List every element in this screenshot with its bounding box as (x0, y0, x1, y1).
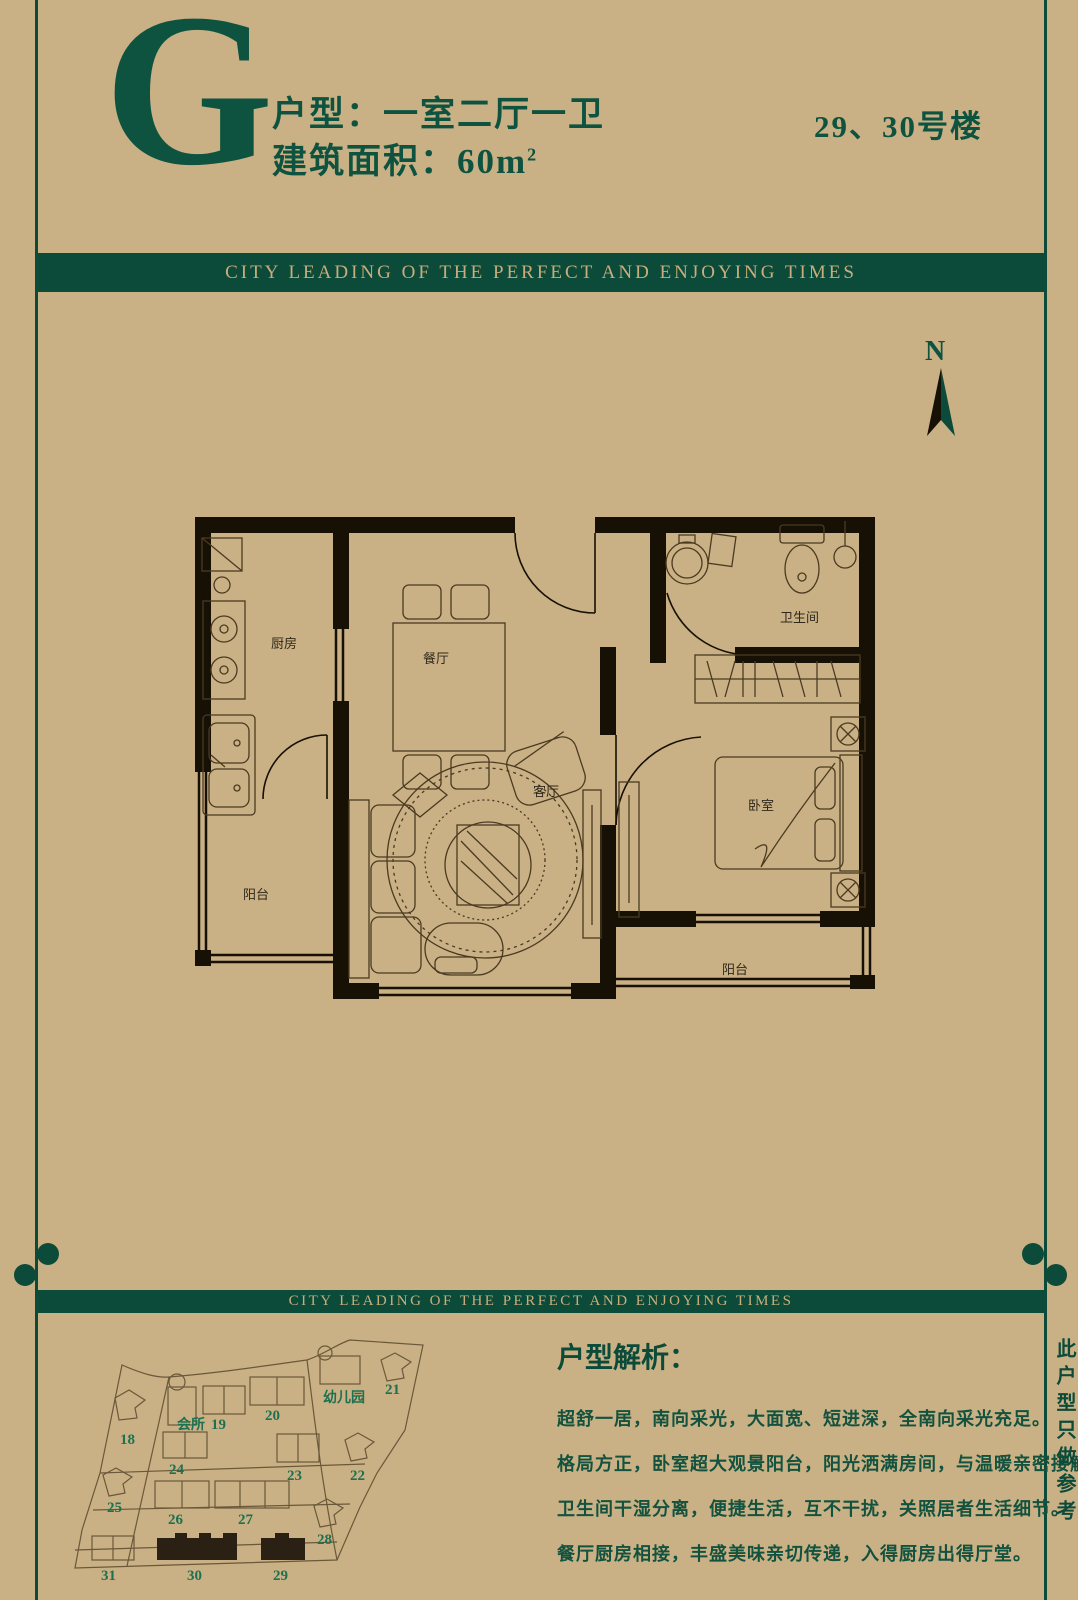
analysis-line: 超舒一居，南向采光，大面宽、短进深，全南向采光充足。 (557, 1405, 1051, 1431)
top-banner-text: CITY LEADING OF THE PERFECT AND ENJOYING… (225, 262, 857, 284)
site-label: 22 (350, 1468, 365, 1484)
site-label: 23 (287, 1468, 302, 1484)
room-label-bedroom: 卧室 (748, 798, 774, 813)
site-plan: 18 19 20 21 22 23 24 25 26 27 28 29 30 3… (65, 1332, 445, 1592)
analysis-line: 餐厅厨房相接，丰盛美味亲切传递，入得厨房出得厅堂。 (557, 1540, 1032, 1566)
area-unit: m (496, 142, 527, 181)
unit-letter: G (104, 0, 274, 200)
area-label: 建筑面积： (272, 142, 457, 181)
analysis-line: 格局方正，卧室超大观景阳台，阳光洒满房间，与温暖亲密接触。 (557, 1450, 1078, 1476)
sofa-icon (349, 800, 369, 978)
north-arrow-icon (925, 368, 957, 440)
room-label-bath: 卫生间 (780, 610, 819, 625)
area-value: 60 (457, 142, 496, 181)
chair-icon (403, 585, 441, 619)
site-label-clubhouse: 会所 (177, 1416, 205, 1433)
site-label-kindergarten: 幼儿园 (323, 1389, 365, 1406)
area-unit-sup: 2 (527, 144, 538, 164)
site-label: 28 (317, 1532, 332, 1548)
top-banner: CITY LEADING OF THE PERFECT AND ENJOYING… (36, 253, 1046, 292)
site-label: 26 (168, 1512, 184, 1528)
dining-table-icon (393, 623, 505, 751)
site-label: 27 (238, 1512, 254, 1528)
area-text: 建筑面积：60m2 (272, 133, 538, 184)
site-label: 24 (169, 1462, 185, 1478)
building-number: 29、30号楼 (814, 101, 983, 146)
room-label-living: 客厅 (533, 784, 559, 799)
room-label-balcony-bottom: 阳台 (722, 962, 748, 977)
floor-plan-walls (195, 517, 875, 999)
corner-dot (37, 1243, 59, 1265)
chair-icon (451, 585, 489, 619)
room-label-balcony-left: 阳台 (243, 887, 269, 902)
site-label: 29 (273, 1568, 288, 1584)
site-label: 18 (120, 1432, 135, 1448)
site-label: 31 (101, 1568, 116, 1584)
site-label: 19 (211, 1417, 226, 1433)
site-label: 25 (107, 1500, 122, 1516)
frame-line-left (35, 0, 38, 1600)
unit-type-text: 户型：一室二厅一卫 (272, 86, 605, 137)
chair-icon (403, 755, 441, 789)
analysis-heading: 户型解析： (557, 1336, 697, 1376)
bed-icon (715, 757, 843, 869)
site-label: 20 (265, 1408, 280, 1424)
analysis-line: 卫生间干湿分离，便捷生活，互不干扰，关照居者生活细节。 (557, 1495, 1070, 1521)
chair-icon (451, 755, 489, 789)
corner-dot (1045, 1264, 1067, 1286)
bottom-banner: CITY LEADING OF THE PERFECT AND ENJOYING… (36, 1290, 1046, 1313)
chaise-icon (425, 923, 503, 975)
mirror-icon (708, 533, 736, 566)
floor-plan: 厨房 餐厅 阳台 客厅 卫生间 卧室 阳台 (195, 505, 875, 1005)
corner-dot (1022, 1243, 1044, 1265)
site-plan-boundary (75, 1340, 423, 1568)
site-plan-highlighted-buildings (157, 1533, 305, 1560)
site-label: 21 (385, 1382, 400, 1398)
corner-dot (14, 1264, 36, 1286)
frame-line-right (1044, 0, 1047, 1600)
room-label-kitchen: 厨房 (271, 636, 297, 651)
site-label: 30 (187, 1568, 202, 1584)
bottom-banner-text: CITY LEADING OF THE PERFECT AND ENJOYING… (289, 1293, 794, 1310)
shower-icon (834, 546, 856, 568)
poster-page: G 户型：一室二厅一卫 建筑面积：60m2 29、30号楼 CITY LEADI… (0, 0, 1078, 1600)
north-label: N (925, 336, 945, 368)
floor-plan-furniture (202, 521, 865, 978)
room-label-dining: 餐厅 (423, 651, 449, 666)
side-note: 此户型只做参考 (1050, 1338, 1078, 1527)
